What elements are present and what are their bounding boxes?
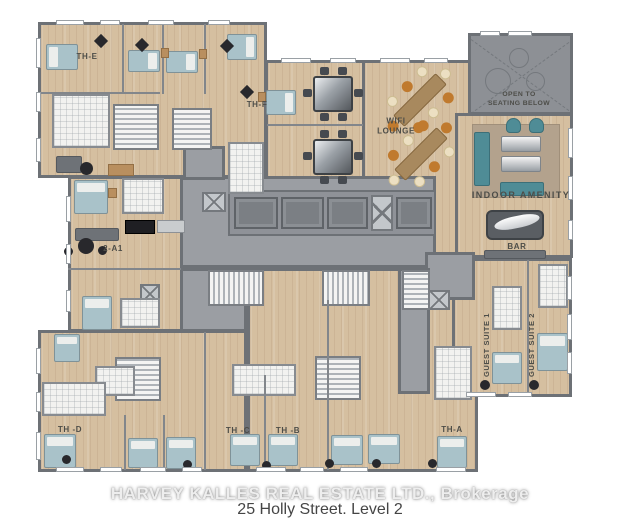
cooktop [125,220,155,234]
bed [44,434,76,468]
window [567,352,572,374]
dining-chair [320,113,329,121]
dining-table [313,139,353,175]
window [36,38,41,68]
chair-dot [480,380,490,390]
core-stairs [322,270,370,306]
room-label-open-to-seating-below: OPEN TO SEATING BELOW [488,91,550,109]
corridor-vestibule [183,146,225,180]
nightstand [199,49,207,59]
elevator-car [234,197,278,229]
chair-dot [372,459,381,468]
partition-wall [68,268,181,270]
partition-wall [267,124,363,126]
bed [230,434,260,466]
dining-chair [354,89,363,97]
chair-dot [62,455,71,464]
room-label-indoor-amenity: INDOOR AMENITY [472,190,570,202]
window [567,314,572,340]
bathroom [52,94,110,148]
bathroom [228,142,264,194]
bed [437,436,467,468]
window [480,31,500,36]
dining-chair [320,176,329,184]
chair [415,118,431,134]
chair-dot [529,380,539,390]
window [56,467,84,472]
table-below-circle [509,48,529,68]
dining-chair [338,176,347,184]
window [56,20,84,25]
room-label-th-f: TH-F [247,100,268,110]
chair [412,174,428,190]
partition-wall [124,415,126,470]
desk [56,156,82,173]
window [568,128,573,158]
dining-chair [338,67,347,75]
chair-dot [325,459,334,468]
window [508,392,532,397]
window [330,58,356,63]
room-label-th-a: TH-A [441,425,463,435]
elevator-car [327,197,368,229]
bed [492,352,522,384]
floor-plan: TH-E TH-F 2-A1 WIFI LOUNGE OPEN TO SEATI… [0,0,640,531]
dining-chair [320,67,329,75]
core-stairs [208,270,264,306]
chair [427,159,443,175]
window [66,290,71,312]
room-label-th-d: TH -D [58,425,82,435]
bed [46,44,78,70]
nightstand [108,188,117,198]
bed [74,180,108,214]
partition-wall [264,375,266,470]
chair [441,90,457,106]
bed [128,438,158,468]
service-shaft [371,195,393,231]
room-label-th-e: TH-E [76,52,97,62]
dining-chair [303,152,312,160]
bar-counter-top [493,211,540,232]
table-below-circle [526,72,545,91]
bed [54,334,80,362]
bathroom [492,286,522,330]
window [568,220,573,240]
bed [537,333,568,371]
window [36,432,41,460]
window [140,467,166,472]
window [100,20,120,25]
elevator-car [281,197,324,229]
window [36,92,41,112]
chair [385,94,401,110]
window [508,31,532,36]
bathroom [120,298,160,328]
partition-wall [122,24,124,94]
window [436,467,466,472]
window [281,58,311,63]
ottoman [501,156,541,172]
table-below-circle [485,68,511,94]
bathroom [538,264,568,308]
window [36,138,41,162]
stairs [402,270,430,310]
chair [80,162,93,175]
bed [268,434,298,466]
chair [414,64,430,80]
stairs [315,356,361,400]
room-label-2-a1: 2-A1 [103,244,123,254]
window [182,467,202,472]
chair [386,148,402,164]
sofa [474,132,490,186]
window [148,20,174,25]
dining-chair [338,113,347,121]
window [567,276,572,300]
partition-wall [162,24,164,94]
room-label-th-c: TH -C [226,426,250,436]
nightstand [161,48,169,58]
kitchen-counter [157,220,185,233]
bed [82,296,112,330]
dining-chair [338,130,347,138]
chair [442,144,458,160]
partition-wall [327,300,329,470]
dining-chair [303,89,312,97]
window [36,392,41,412]
room-label-th-b: TH -B [276,426,300,436]
window [300,467,324,472]
bathroom [42,382,106,416]
window [208,20,230,25]
bed [166,51,198,73]
chair [399,79,415,95]
partition-wall [204,332,206,470]
armchair [506,118,521,133]
window [36,348,41,374]
utility-shaft [428,290,450,310]
bed [128,50,160,72]
dining-chair [320,130,329,138]
bar-island [486,210,544,240]
room-label-guest-suite-2: GUEST SUITE 2 [527,313,537,377]
utility-shaft [202,192,226,212]
round-table [78,238,94,254]
armchair [529,118,544,133]
window [380,58,410,63]
stairs [172,108,212,150]
ottoman [501,136,541,152]
bed [331,435,363,465]
window [256,467,286,472]
partition-wall [204,24,206,94]
partition-wall [40,92,160,94]
window [424,58,448,63]
dining-table [313,76,353,112]
plan-caption: 25 Holly Street. Level 2 [237,501,402,519]
room-label-wifi-lounge: WIFI LOUNGE [377,117,415,138]
window [466,392,496,397]
partition-wall [163,415,165,470]
window [66,196,71,222]
desk-wood [108,164,134,176]
window [340,467,368,472]
bathroom [122,178,164,214]
room-label-guest-suite-1: GUEST SUITE 1 [482,313,492,377]
bed [266,90,296,115]
window [66,244,71,264]
stairs [113,104,159,150]
room-label-bar: BAR [507,242,526,252]
window [100,467,122,472]
